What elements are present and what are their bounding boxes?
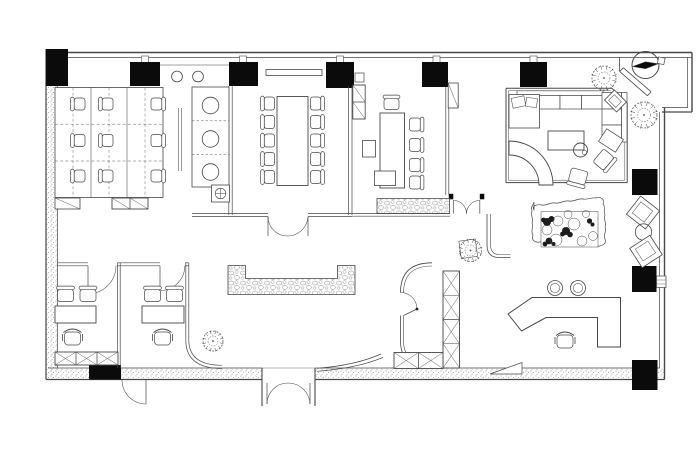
dining-chair [383,95,400,109]
compass-flag [657,57,665,65]
chair-body [264,171,274,184]
sofa-cushion [582,95,604,109]
plant-part [218,346,221,349]
plant-part [643,114,645,116]
plant-part [603,77,605,79]
chair-body [74,98,85,110]
open-office-workstations [55,88,165,210]
plant-part [651,122,654,125]
floor-plan-canvas [0,0,700,465]
dining-chair [410,175,424,190]
task-chair [71,169,85,183]
bar-stool [193,71,204,82]
chair-body [310,171,320,184]
sofa-pillow [525,97,537,107]
pebble-planter [377,199,450,214]
conference-chair [310,115,324,130]
chair-body [151,135,162,147]
rug-motif [543,242,548,247]
guest-chair [79,286,97,301]
plant-part [212,340,214,342]
bottom-wall-hatch-left [48,368,262,379]
chair-body [58,290,74,302]
column [422,62,448,87]
chair-back [71,134,75,148]
lobby-flared-wall [317,354,381,368]
dining-chair [410,138,424,153]
chair-back [321,170,325,185]
chair-body [410,176,421,189]
floor-plan-page [0,0,700,465]
potted-plant [203,331,224,352]
chair-body [264,134,274,147]
conference-chair [261,115,275,130]
chair-body [102,98,113,110]
chair-back [261,152,265,167]
dining-room [363,83,459,214]
chair-back [71,97,75,111]
task-chair [151,134,165,148]
lobby [203,239,482,352]
storage [394,271,522,374]
office-credenza [55,352,118,365]
plant-part [634,105,637,108]
visitor-stool [548,281,563,296]
chair-body [264,116,274,129]
plant-part [595,84,598,87]
chair-back [144,286,162,290]
chair-body [145,290,161,302]
conference-chair [310,133,324,148]
plant-part [612,80,616,81]
chair-body [410,118,421,131]
dining-chair [410,158,424,173]
stool-part [548,281,563,296]
plant-part [218,333,221,336]
chair-body [310,97,320,110]
conference-chair [261,133,275,148]
chair-body [310,116,320,129]
pantry [172,71,230,202]
chair-back [321,152,325,167]
chair-back [420,158,424,173]
sofa-cushion [539,95,561,109]
pantry-counter [192,87,229,187]
conference-door-swing [268,217,287,236]
plant-part [205,333,208,336]
chair-back [166,286,184,290]
chair-back [261,115,265,130]
column [632,360,658,390]
executive-lounge [509,90,627,189]
corner-diagonal-cap [648,92,652,96]
chair-back [261,96,265,111]
lounge-armchair [566,167,589,189]
chair-body [167,290,183,302]
office-chair-seat [155,332,171,345]
rug-motif [567,232,573,238]
column [46,49,68,86]
door-hinge-post [480,194,485,200]
column [229,62,258,86]
column [632,169,658,195]
wall-unit [657,276,667,288]
task-chair [99,97,113,111]
plant-part [478,253,482,254]
column [520,62,547,87]
conference-chair [310,152,324,167]
curved-partition-top [401,263,433,293]
plant-part [646,101,647,106]
plant-part [215,348,216,351]
task-chair [71,97,85,111]
window-mullion-tick [530,56,537,63]
plant-part [653,111,658,112]
window-mullion-tick [142,56,149,63]
chair-back [99,134,103,148]
column [130,62,160,86]
visitor-stool [571,281,586,296]
task-chair [99,169,113,183]
chair-body [310,153,320,166]
plant-part [646,124,647,129]
stone-planter-bench [228,266,355,295]
chair-back [261,170,265,185]
rug-motif [591,223,595,227]
rug-motif [587,218,592,223]
plant-part [470,250,472,252]
plant-part [210,348,211,351]
office-chair [153,329,173,345]
entry-door-swing [267,383,288,404]
bottom-wall-hatch-right [315,368,665,379]
sofa-cushion [560,95,582,109]
chair-back [420,175,424,190]
dining-door-swing [467,200,480,213]
plant-part [601,65,602,69]
column [326,62,354,88]
conference-chair [310,170,324,185]
office-chair-seat [557,335,573,348]
corner-diagonal-wall [623,68,651,92]
plant-part [610,84,613,87]
chair-back [71,169,75,183]
office-desk [142,306,184,323]
column [89,365,121,380]
chair-back [57,286,75,290]
chair-back [261,133,265,148]
chair-back [420,138,424,153]
chair-body [410,159,421,172]
chair-back [162,134,166,148]
side-exit-door-swing [122,380,146,404]
plant-part [634,122,637,125]
rug-motif [560,232,565,237]
bar-stool [172,71,183,82]
wall-whiteboard [266,70,322,76]
office-chair-seat [65,332,81,345]
window-mullion-tick [337,56,344,63]
plant-part [220,338,223,339]
chair-body [151,170,162,182]
chair-back [420,117,424,132]
low-cabinet [112,198,148,209]
conference-chair [261,170,275,185]
conference-chair [310,96,324,111]
chair-body [74,135,85,147]
plant-part [595,69,598,72]
reception-chair [555,332,575,348]
entry-door-swing [288,383,310,404]
tall-cabinet [448,83,458,108]
chair-back [321,96,325,111]
av-equipment-box [355,73,364,82]
stool-part [571,281,586,296]
lounge-approach-wall [491,214,511,255]
lounge-armchair [592,148,617,174]
partition-door-leaf [404,309,417,316]
window-mullion-tick [433,56,440,63]
plant-part [653,117,658,118]
compass-needle [633,62,659,69]
column [632,266,657,292]
chair-body [74,170,85,182]
dining-chair [410,117,424,132]
partition-door-swing [401,293,418,310]
chair-back [162,169,166,183]
chair-back [162,97,166,111]
chair-back [321,115,325,130]
chair-body [102,170,113,182]
sofa-cushion [602,109,622,125]
chair-body [264,97,274,110]
plant-part [476,242,479,245]
task-chair [71,134,85,148]
partition-door-hinge [416,308,419,311]
chair-back [79,286,97,290]
plant-part [591,80,595,81]
chair-body [102,135,113,147]
chair-body [384,99,399,110]
conference-chair [261,152,275,167]
office-chair [63,329,83,345]
guest-chair [166,286,184,301]
task-chair [151,97,165,111]
guest-chair [144,286,162,301]
low-cabinet [55,198,80,209]
chair-back [99,169,103,183]
task-chair [151,169,165,183]
potted-plant [630,101,657,128]
chair-body [151,98,162,110]
plant-part [215,331,216,334]
dining-door-swing [453,200,466,213]
chair-back [321,133,325,148]
chair-body [264,153,274,166]
chair-body [410,139,421,152]
av-cabinet [353,85,365,119]
conference-table [277,97,308,186]
conference-door-swing [287,217,308,236]
low-storage-cabinet [394,353,443,369]
conference-chair [261,96,275,111]
tall-storage-cabinet [443,271,460,368]
private-offices [55,286,184,365]
chair-back [99,97,103,111]
chair-body [80,290,96,302]
coffee-table [548,131,584,150]
plant-part [220,343,223,344]
office-desk [55,306,96,323]
potted-plant [591,65,616,90]
task-chair [99,134,113,148]
rug-motif [541,218,546,223]
corner-diagonal-cap [620,68,624,72]
curved-partition-top [404,266,432,293]
window-mullion-tick [240,56,247,63]
side-table [375,171,396,186]
side-stool [363,141,376,158]
guest-chair [57,286,75,301]
plant-part [610,69,613,72]
curved-bench [509,141,553,185]
plant-part [651,105,654,108]
chair-body [310,134,320,147]
chair-back [383,95,400,99]
table-accessory [582,150,586,154]
